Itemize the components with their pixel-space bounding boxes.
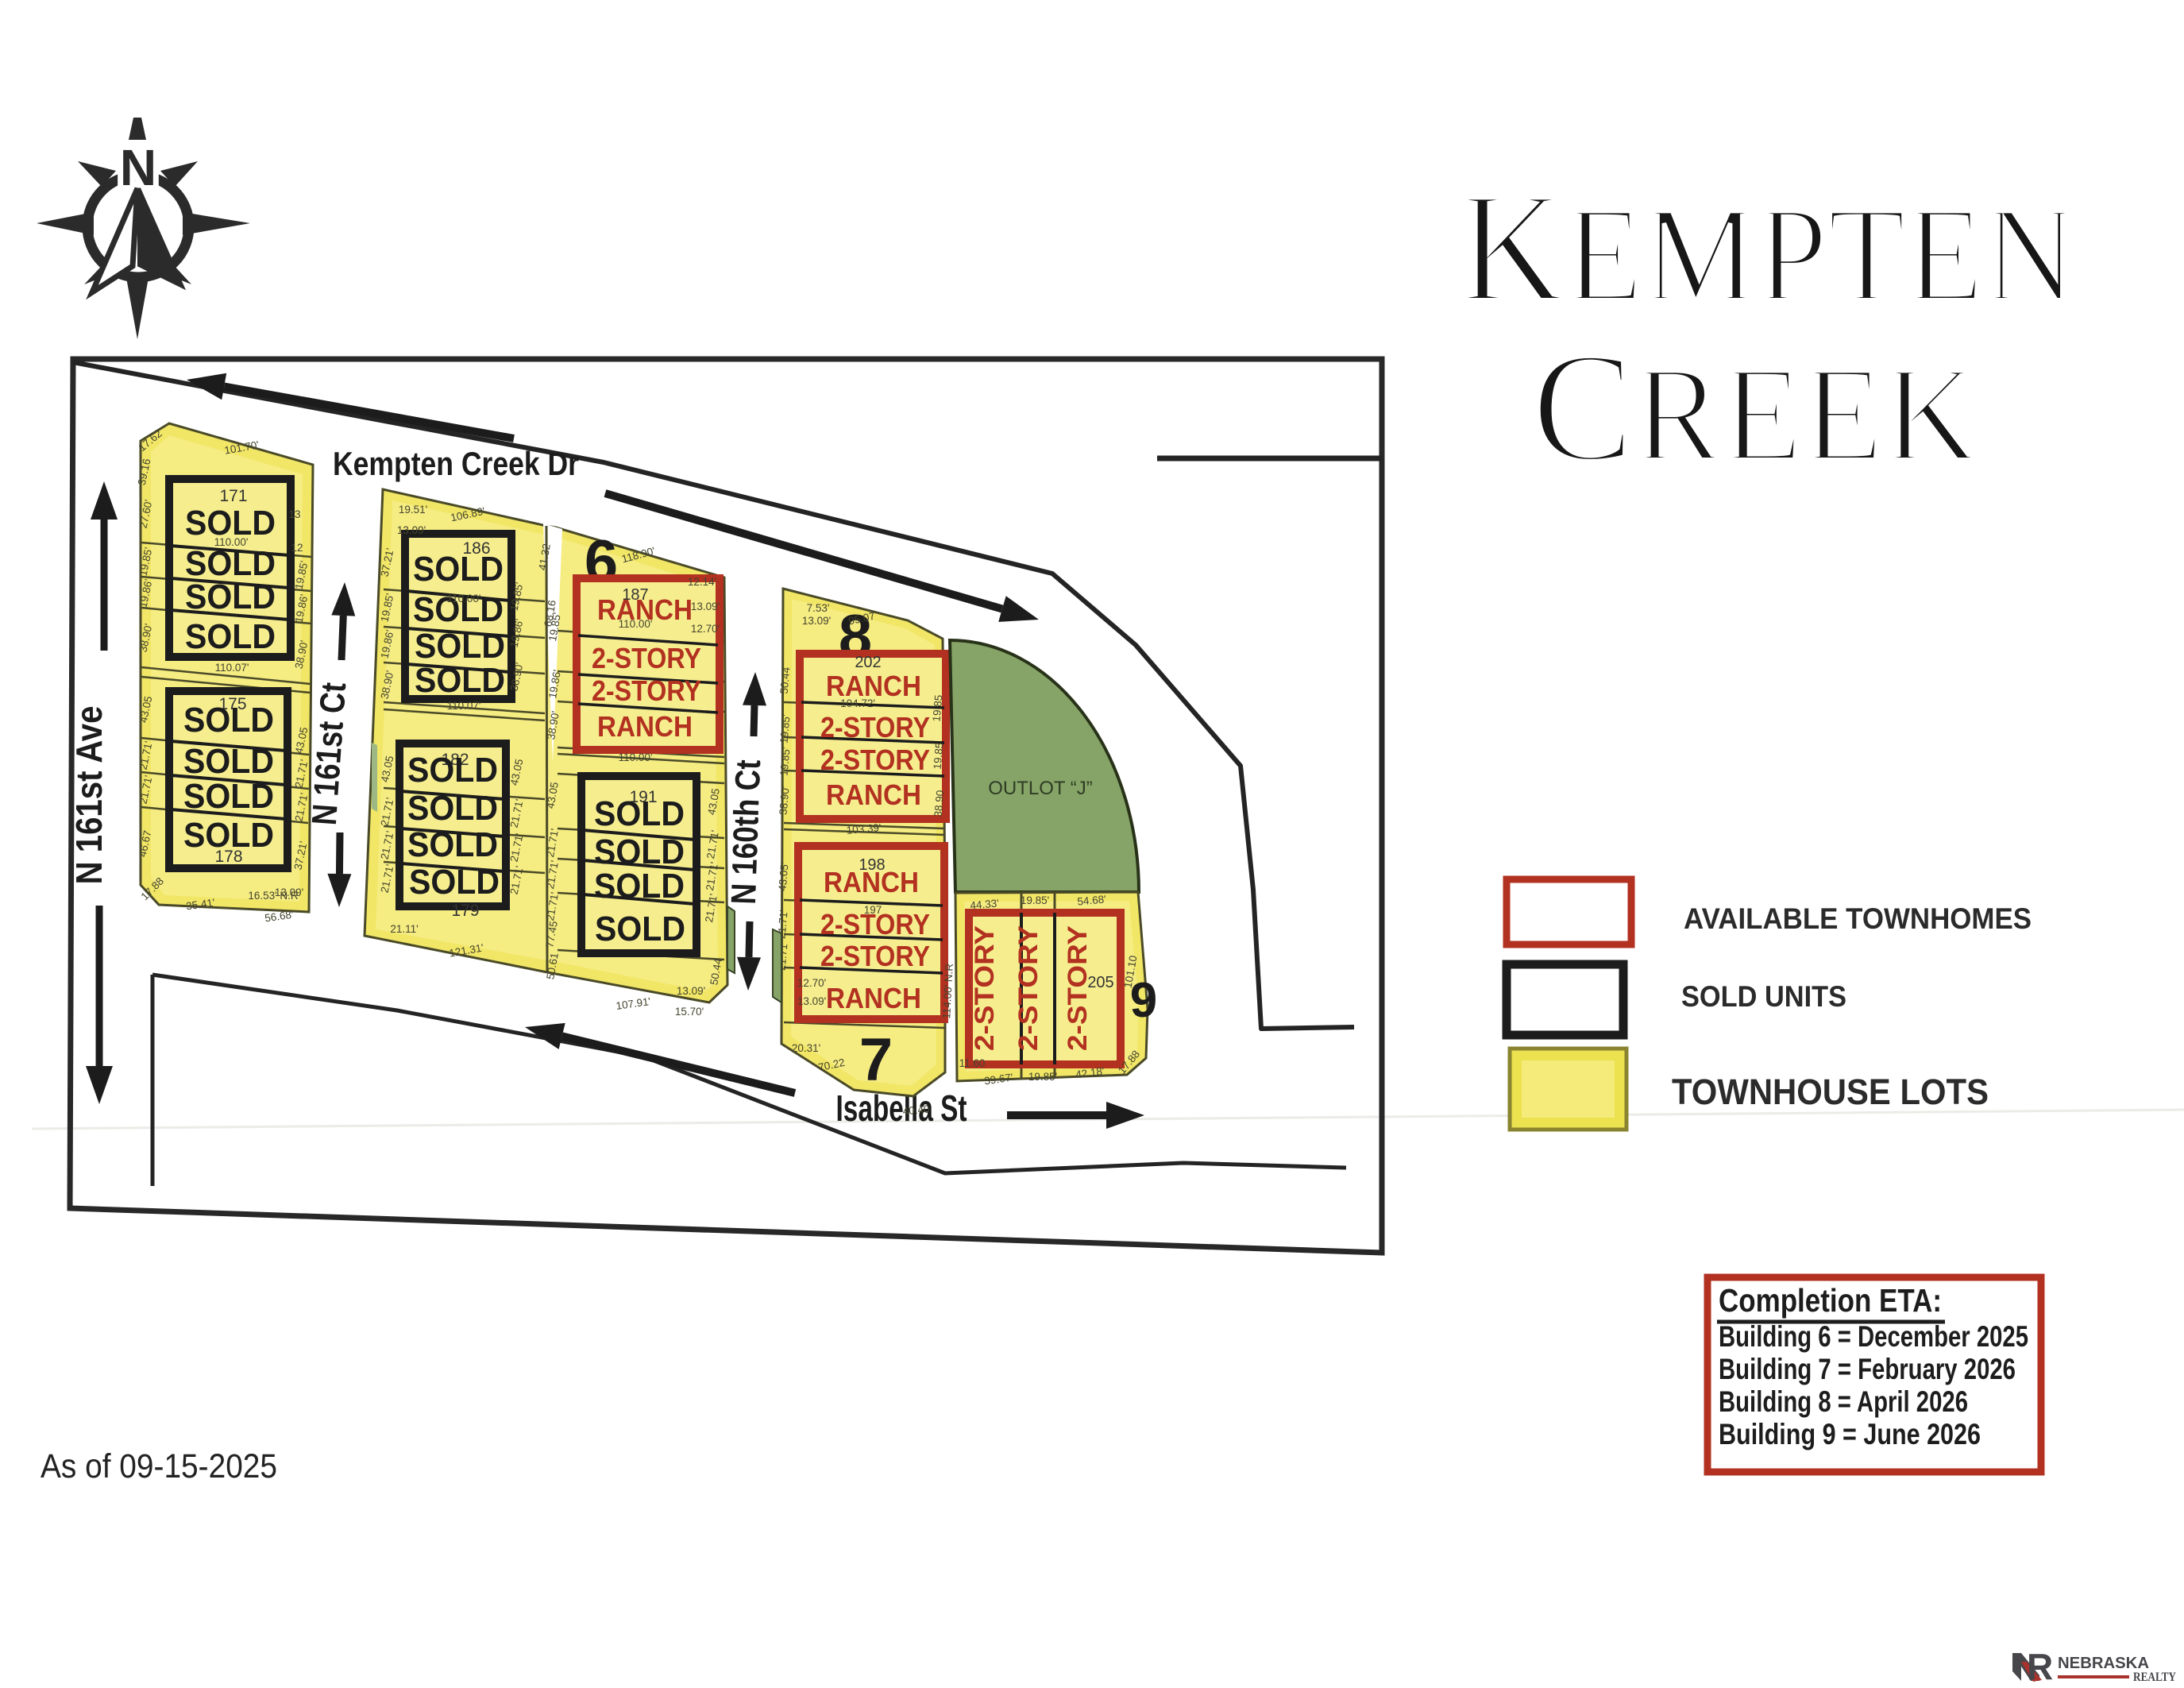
svg-text:19.85': 19.85' [1021,894,1049,906]
svg-text:15.70': 15.70' [675,1006,704,1018]
svg-text:171: 171 [219,487,247,505]
svg-text:54.68': 54.68' [1077,893,1107,907]
svg-text:AVAILABLE TOWNHOMES: AVAILABLE TOWNHOMES [1684,902,2032,935]
svg-text:38.90': 38.90' [777,786,791,816]
svg-text:SOLD: SOLD [415,661,505,700]
svg-text:SOLD: SOLD [407,789,498,828]
svg-text:SOLD: SOLD [594,867,685,906]
svg-text:202: 202 [855,654,881,671]
svg-text:SOLD: SOLD [185,577,276,616]
svg-text:2-STORY: 2-STORY [970,925,1000,1051]
svg-text:OUTLOT “J”: OUTLOT “J” [988,778,1093,799]
svg-text:Building 6 = December 2025: Building 6 = December 2025 [1719,1320,2028,1353]
svg-text:20.31': 20.31' [792,1042,820,1054]
svg-text:110.07': 110.07' [447,700,481,712]
svg-text:SOLD: SOLD [413,550,504,589]
svg-text:SOLD: SOLD [407,825,498,864]
svg-text:TOWNHOUSE LOTS: TOWNHOUSE LOTS [1672,1072,1989,1112]
svg-text:110.00': 110.00' [447,593,481,605]
svg-text:SOLD UNITS: SOLD UNITS [1681,980,1846,1013]
svg-text:SOLD: SOLD [594,794,685,833]
svg-text:50.44: 50.44 [778,666,793,694]
svg-text:12.70': 12.70' [797,977,826,989]
svg-text:KEMPTEN: KEMPTEN [1459,160,2076,334]
svg-text:NEBRASKA: NEBRASKA [2058,1655,2149,1672]
svg-text:RANCH: RANCH [826,982,921,1014]
svg-text:44.33': 44.33' [970,897,1000,911]
svg-text:19.85: 19.85 [932,742,946,770]
svg-text:12: 12 [291,542,303,554]
svg-text:SOLD: SOLD [185,617,276,656]
svg-text:SOLD: SOLD [415,627,505,666]
svg-text:CREEK: CREEK [1532,320,1979,494]
svg-text:12.70': 12.70' [691,623,720,635]
svg-text:7.53': 7.53' [807,602,830,614]
svg-text:205: 205 [1087,974,1113,991]
svg-text:19.51': 19.51' [399,504,427,516]
svg-text:21.11': 21.11' [390,923,418,935]
svg-text:Building 7 = February 2026: Building 7 = February 2026 [1719,1353,2016,1385]
svg-text:13.09': 13.09' [802,615,831,627]
svg-text:RANCH: RANCH [824,866,919,898]
svg-text:110.00': 110.00' [214,536,249,548]
svg-text:38.90: 38.90 [932,790,947,817]
svg-text:As of 09-15-2025: As of 09-15-2025 [41,1447,277,1485]
svg-text:N: N [120,139,156,196]
svg-text:2-STORY: 2-STORY [1013,925,1044,1051]
svg-text:40.40: 40.40 [902,1103,930,1118]
svg-text:SOLD: SOLD [594,832,685,871]
svg-text:2-STORY: 2-STORY [592,674,701,707]
svg-text:SOLD: SOLD [183,742,274,781]
svg-text:SOLD: SOLD [595,910,685,948]
svg-text:Kempten Creek Dr: Kempten Creek Dr [333,445,579,482]
svg-text:178: 178 [214,848,242,866]
svg-text:RANCH: RANCH [597,710,693,743]
svg-text:SOLD: SOLD [183,701,274,740]
svg-text:Completion ETA:: Completion ETA: [1719,1282,1942,1319]
svg-text:SOLD: SOLD [407,751,498,790]
svg-text:13.09': 13.09' [797,995,826,1007]
svg-text:110.00': 110.00' [619,751,653,763]
svg-text:2-STORY: 2-STORY [592,642,701,674]
svg-text:13: 13 [288,508,300,520]
svg-text:43.05': 43.05' [776,862,790,892]
svg-text:12.14': 12.14' [688,576,716,588]
svg-text:110.00': 110.00' [619,618,653,630]
svg-text:2-STORY: 2-STORY [820,940,930,972]
svg-text:REALTY: REALTY [2133,1671,2176,1684]
svg-text:SOLD: SOLD [183,777,274,816]
svg-text:13.09': 13.09' [397,524,426,536]
svg-text:13.09': 13.09' [691,601,720,612]
svg-text:110.07': 110.07' [215,662,249,674]
svg-text:19.85': 19.85' [1028,1071,1057,1083]
svg-text:179: 179 [451,902,479,920]
svg-text:R: R [2027,1646,2053,1687]
svg-text:7: 7 [859,1026,893,1094]
svg-text:N 160th Ct: N 160th Ct [724,759,768,905]
svg-text:19.85': 19.85' [778,714,792,744]
svg-text:19.85': 19.85' [778,747,792,777]
svg-text:N 161st Ave: N 161st Ave [68,706,110,885]
svg-text:Building 9 = June 2026: Building 9 = June 2026 [1719,1418,1981,1450]
svg-text:197: 197 [864,904,882,916]
svg-text:RANCH: RANCH [826,778,921,811]
svg-text:SOLD: SOLD [409,863,500,902]
svg-text:104.72': 104.72' [840,697,875,709]
svg-text:13.09': 13.09' [677,985,705,997]
svg-text:2-STORY: 2-STORY [820,711,930,744]
svg-text:11.60: 11.60 [959,1057,986,1069]
svg-text:19.85: 19.85 [931,694,945,722]
svg-text:Building 8 = April 2026: Building 8 = April 2026 [1719,1385,1968,1418]
svg-text:2-STORY: 2-STORY [820,744,930,776]
svg-text:13.09': 13.09' [275,886,303,898]
